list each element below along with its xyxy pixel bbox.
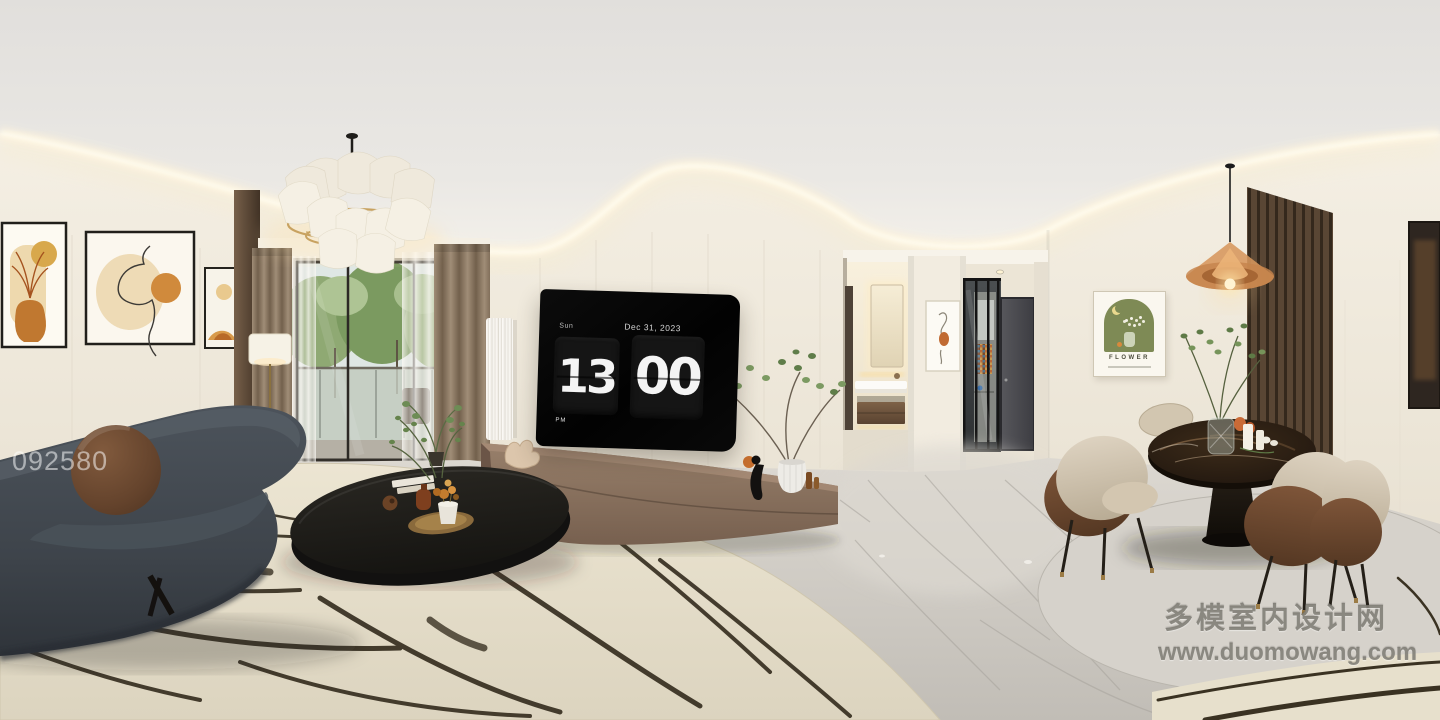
amber-bottle	[806, 472, 812, 489]
panorama-scene: Sun Dec 31, 2023 13 00 PM FLOWER 092580 …	[0, 0, 1440, 720]
vanity-counter	[855, 381, 907, 389]
amber-bottle-small	[814, 477, 819, 489]
edge-artwork	[1409, 222, 1440, 408]
hallway	[843, 250, 1048, 472]
dark-door	[1001, 298, 1034, 450]
flower-vase	[1124, 332, 1135, 347]
drape-right	[434, 244, 490, 470]
clock-minutes-card: 00	[630, 335, 706, 420]
clock-hours: 13	[556, 348, 616, 404]
watermark-site-name: 多模室内设计网	[1158, 595, 1394, 637]
bathroom	[843, 258, 908, 470]
bench-vase	[778, 459, 807, 493]
watermark-photo-id: 092580	[12, 446, 108, 477]
candle	[1243, 424, 1253, 450]
flower-poster: FLOWER	[1093, 291, 1166, 377]
vanity-mirror	[871, 285, 903, 367]
art-frame-figure	[86, 232, 194, 356]
clock-hours-card: 13	[553, 336, 620, 415]
watermark-site: 多模室内设计网 www.duomowang.com	[1158, 595, 1394, 667]
flower-poster-caption-line	[1108, 366, 1151, 368]
art-frame-arcs	[205, 268, 237, 348]
fruit-dot	[1117, 342, 1122, 347]
art-frame-vase	[2, 223, 66, 347]
flower-poster-title: FLOWER	[1094, 355, 1165, 361]
clock-meridiem: PM	[555, 417, 566, 423]
hallway-poster	[926, 301, 960, 371]
crescent-moon-icon	[1112, 306, 1121, 315]
bathroom-door	[845, 286, 853, 434]
clock-minutes: 00	[634, 347, 701, 408]
flower-bouquet	[1125, 319, 1128, 322]
radiator	[486, 318, 517, 440]
hallway-column	[908, 256, 966, 472]
watermark-site-url: www.duomowang.com	[1158, 639, 1394, 667]
clock-date: Dec 31, 2023	[624, 322, 681, 334]
clock-day: Sun	[559, 323, 573, 330]
kitchen-glass-door	[963, 278, 1001, 452]
flower-poster-art	[1104, 299, 1154, 352]
tv-screen: Sun Dec 31, 2023 13 00 PM	[536, 289, 741, 452]
knot-sculpture	[383, 496, 398, 511]
